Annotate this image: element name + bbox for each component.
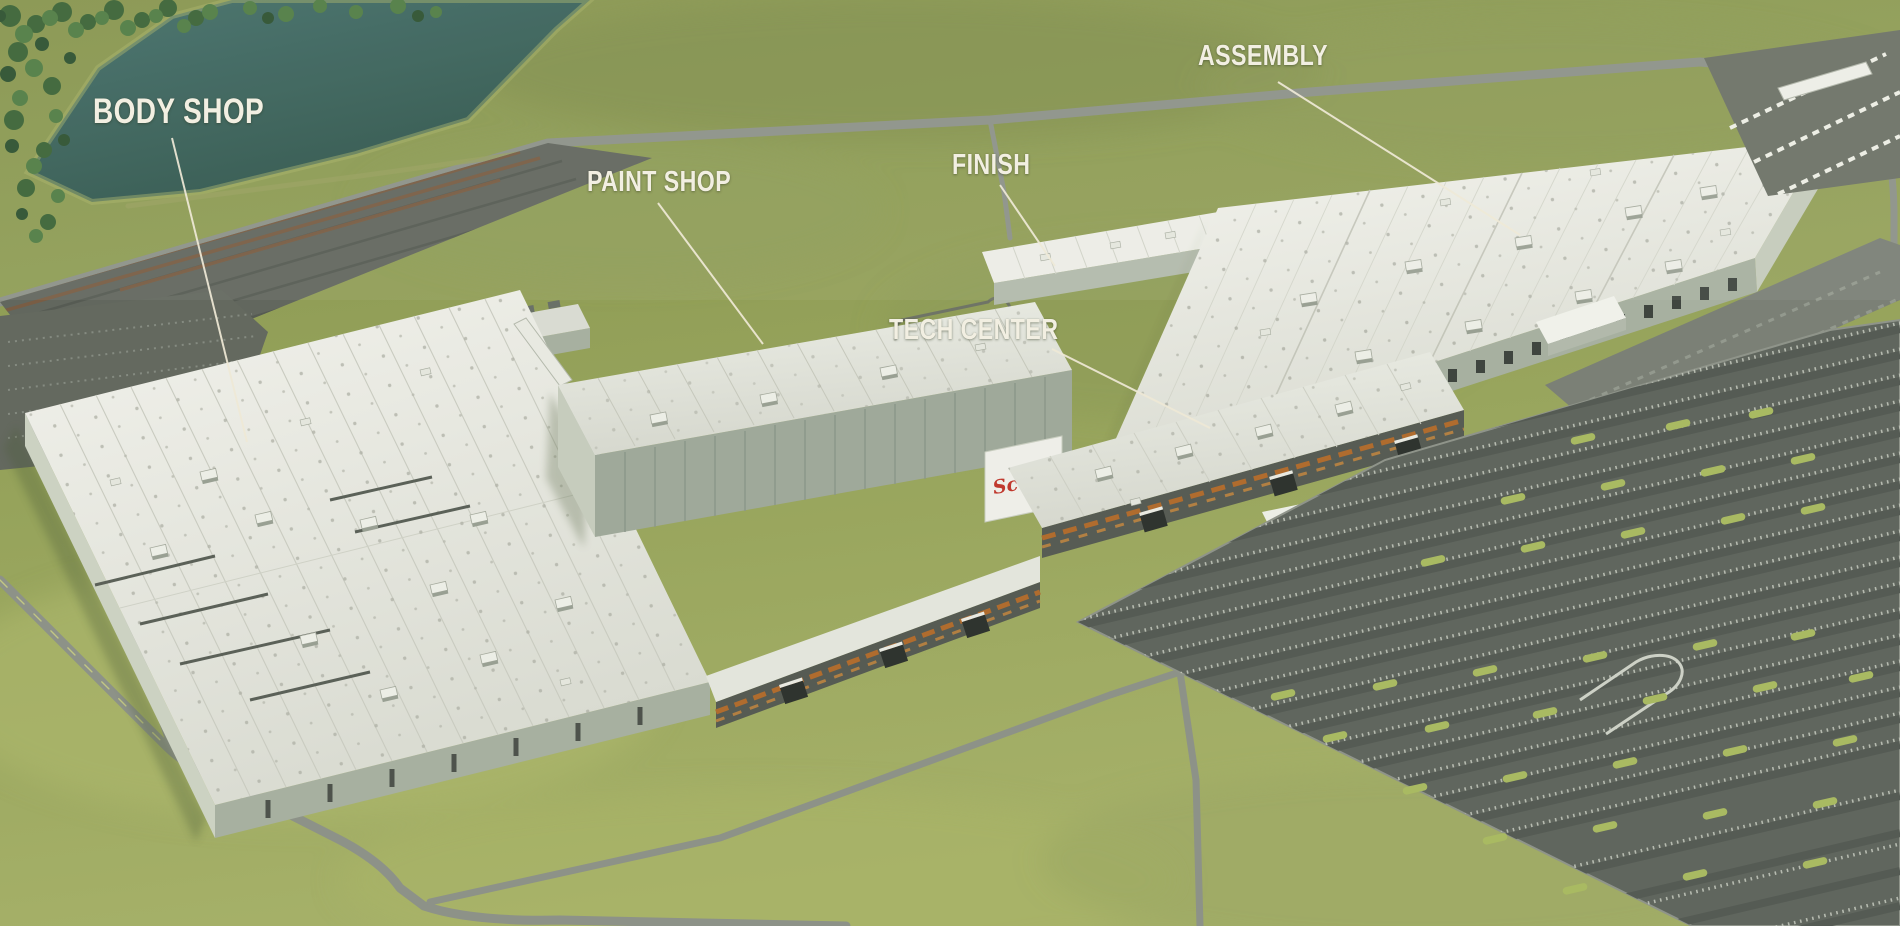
label-body-shop: BODY SHOP [93,92,264,132]
atmospheric-haze [0,0,1900,300]
site-plan-scene: Scout [0,0,1900,926]
aerial-factory-rendering: Scout [0,0,1900,926]
label-paint-shop: PAINT SHOP [587,166,731,199]
label-finish: FINISH [952,149,1030,182]
label-assembly: ASSEMBLY [1198,40,1328,73]
label-tech-center: TECH CENTER [889,314,1058,347]
